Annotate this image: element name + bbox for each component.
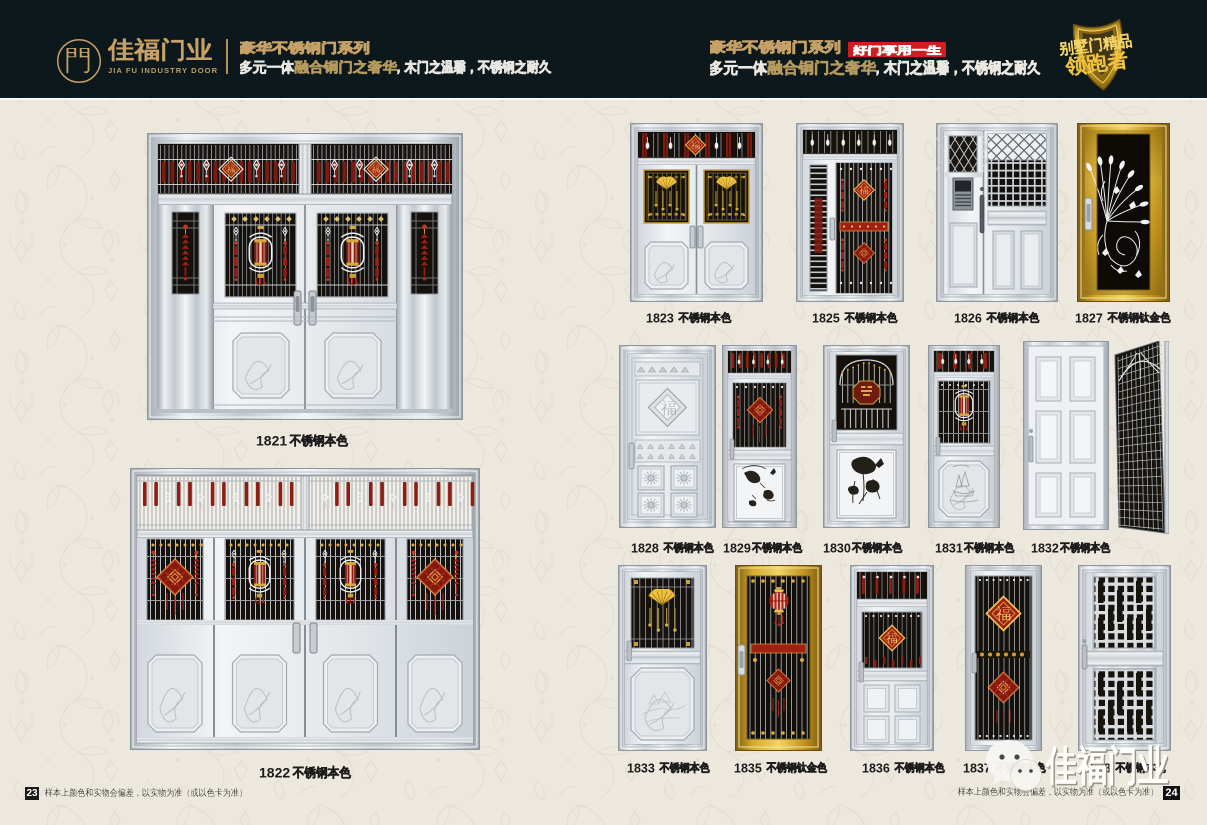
svg-text:1836: 1836 (862, 762, 890, 776)
svg-text:1833: 1833 (627, 762, 655, 776)
svg-text:1831: 1831 (935, 542, 963, 556)
svg-text:1823: 1823 (646, 312, 674, 326)
svg-text:1825: 1825 (812, 312, 840, 326)
svg-text:1821: 1821 (256, 433, 287, 449)
svg-text:1822: 1822 (259, 765, 290, 781)
svg-text:1830: 1830 (823, 542, 851, 556)
svg-text:1829: 1829 (723, 542, 751, 556)
svg-text:1835: 1835 (734, 762, 762, 776)
svg-text:1828: 1828 (631, 542, 659, 556)
svg-text:1827: 1827 (1075, 312, 1103, 326)
svg-text:1826: 1826 (954, 312, 982, 326)
svg-text:1832: 1832 (1031, 542, 1059, 556)
